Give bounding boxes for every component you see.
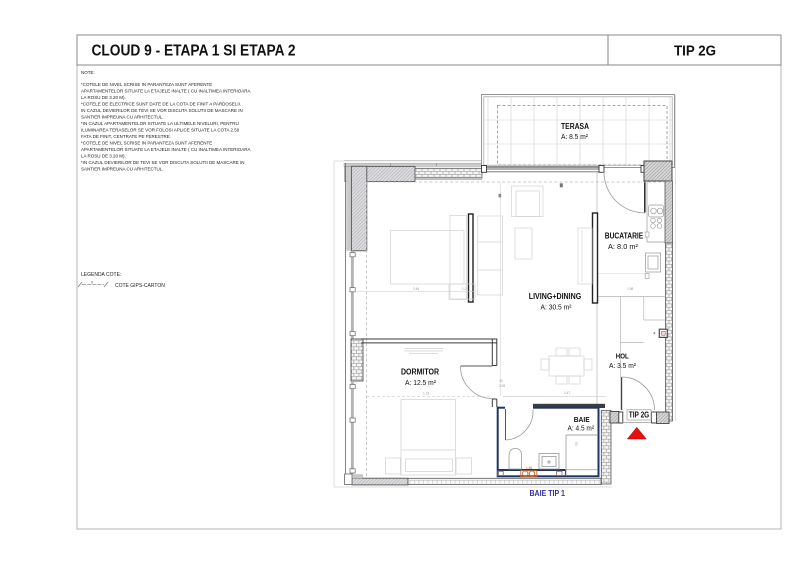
svg-text:LA ROSU DE 3.20 M).: LA ROSU DE 3.20 M).: [81, 95, 126, 100]
svg-text:HOL: HOL: [616, 352, 629, 361]
svg-text:1.98: 1.98: [627, 287, 633, 291]
svg-text:FATA DE FINIT, CENTRATE PE FER: FATA DE FINIT, CENTRATE PE FERESTRE.: [81, 134, 171, 139]
svg-text:A: 8.0 m²: A: 8.0 m²: [608, 242, 639, 251]
svg-text:COTE GIPS-CARTON: COTE GIPS-CARTON: [115, 283, 165, 289]
svg-text:*IN CAZUL APARTAMENTELOR SITUA: *IN CAZUL APARTAMENTELOR SITUATE LA ULTI…: [81, 121, 239, 126]
svg-text:SANTIER IMPREUNA CU ARHITECTUL: SANTIER IMPREUNA CU ARHITECTUL.: [81, 115, 164, 120]
svg-text:9: 9: [91, 280, 93, 284]
svg-text:2.08: 2.08: [499, 384, 505, 388]
svg-text:1.46: 1.46: [526, 466, 532, 470]
svg-text:*COTELE DE ELECTRICE SUNT DATE: *COTELE DE ELECTRICE SUNT DATE DE LA COT…: [81, 102, 241, 107]
svg-text:IN CAZUL DEVIERILOR DE TEVI SE: IN CAZUL DEVIERILOR DE TEVI SE VOR DISCU…: [81, 108, 243, 113]
svg-text:1.47: 1.47: [564, 391, 570, 395]
svg-text:BAIE TIP 1: BAIE TIP 1: [529, 489, 565, 498]
svg-text:LEGENDA COTE:: LEGENDA COTE:: [81, 272, 121, 278]
svg-text:TIP 2G: TIP 2G: [674, 44, 716, 60]
svg-text:2.48: 2.48: [413, 287, 419, 291]
svg-text:BUCATARIE: BUCATARIE: [605, 232, 644, 241]
svg-text:LA ROSU DE 3.20 M).: LA ROSU DE 3.20 M).: [81, 154, 126, 159]
svg-text:TERASA: TERASA: [561, 122, 589, 131]
svg-text:90: 90: [500, 379, 504, 383]
svg-text:LIVING+DINING: LIVING+DINING: [529, 292, 582, 301]
svg-text:90: 90: [574, 442, 578, 446]
svg-text:CLOUD 9 - ETAPA 1 SI ETAPA 2: CLOUD 9 - ETAPA 1 SI ETAPA 2: [92, 43, 296, 60]
svg-text:A: 8.5 m²: A: 8.5 m²: [561, 132, 589, 141]
svg-text:APARTAMENTELOR SITUATE LA ETAJ: APARTAMENTELOR SITUATE LA ETAJELE INALTE…: [81, 89, 250, 94]
svg-text:A: 30.5 m²: A: 30.5 m²: [541, 303, 573, 312]
svg-text:*COTELE DE NIVEL SCRISE IN PAR: *COTELE DE NIVEL SCRISE IN PARANTEZA SUN…: [81, 141, 212, 146]
svg-text:*IN CAZUL DEVIERILOR DE TEVI S: *IN CAZUL DEVIERILOR DE TEVI SE VOR DISC…: [81, 160, 244, 165]
svg-text:1.13: 1.13: [423, 392, 429, 396]
svg-text:1.2: 1.2: [462, 287, 467, 291]
svg-text:TIP 2G: TIP 2G: [629, 411, 650, 420]
svg-text:SANTIER IMPREUNA CU ARHITECTUL: SANTIER IMPREUNA CU ARHITECTUL.: [81, 167, 164, 172]
svg-text:APARTAMENTELOR SITUATE LA ETAJ: APARTAMENTELOR SITUATE LA ETAJELE INALTE…: [81, 147, 250, 152]
svg-text:A: 3.5 m²: A: 3.5 m²: [609, 361, 637, 370]
svg-text:A: 4.5 m²: A: 4.5 m²: [568, 424, 595, 433]
svg-text:*COTELE DE NIVEL SCRISE IN PAR: *COTELE DE NIVEL SCRISE IN PARANTEZA SUN…: [81, 82, 212, 87]
svg-text:A: 12.5 m²: A: 12.5 m²: [405, 378, 437, 387]
svg-text:ILUMINAREA TERASELOR SE VOR FO: ILUMINAREA TERASELOR SE VOR FOLOSI APLIC…: [81, 128, 240, 133]
svg-text:DORMITOR: DORMITOR: [401, 368, 439, 377]
svg-text:NOTE:: NOTE:: [81, 70, 95, 75]
